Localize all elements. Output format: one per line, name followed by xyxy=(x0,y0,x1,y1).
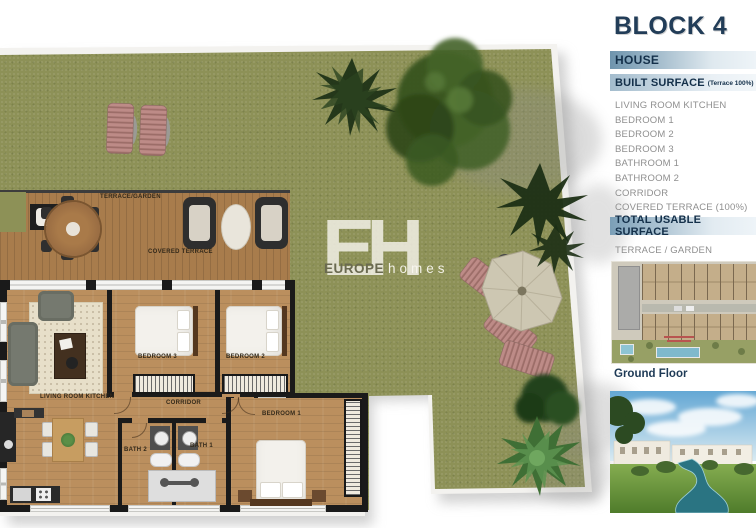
room-list: LIVING ROOM KITCHEN BEDROOM 1 BEDROOM 2 … xyxy=(615,99,748,216)
room-list-item: BEDROOM 2 xyxy=(615,128,748,143)
room-list-item: BEDROOM 1 xyxy=(615,114,748,129)
watermark: EH EUROPEhomes xyxy=(322,214,452,296)
info-panel: BLOCK 4 HOUSE BUILT SURFACE (Terrace 100… xyxy=(606,0,756,528)
terrace-garden-line: TERRACE / GARDEN xyxy=(615,245,712,256)
built-surface-bar: BUILT SURFACE (Terrace 100%) xyxy=(610,74,756,91)
round-bush xyxy=(515,374,579,425)
siteplan-pool-small xyxy=(620,344,634,355)
siteplan-unit-row xyxy=(642,314,756,340)
siteplan-tree xyxy=(712,342,719,349)
siteplan-tree xyxy=(738,348,745,355)
siteplan-thumbnail xyxy=(612,262,756,363)
sun-lounger xyxy=(139,105,171,156)
siteplan-tree xyxy=(646,342,653,349)
parasol xyxy=(482,251,562,331)
siteplan-car xyxy=(674,306,682,311)
render-photo xyxy=(610,391,756,513)
siteplan-annotation xyxy=(667,340,691,342)
siteplan-building xyxy=(618,266,640,330)
room-list-item: LIVING ROOM KITCHEN xyxy=(615,99,748,114)
room-list-item: BEDROOM 3 xyxy=(615,143,748,158)
sun-lounger xyxy=(106,103,138,154)
watermark-name-bold: EUROPE xyxy=(324,261,384,276)
siteplan-pool xyxy=(656,347,700,358)
siteplan-road xyxy=(642,304,756,312)
built-surface-note: (Terrace 100%) xyxy=(708,80,754,87)
siteplan-tree xyxy=(628,356,634,362)
watermark-name-light: homes xyxy=(388,261,449,276)
palm-tree xyxy=(308,55,398,139)
house-bar: HOUSE xyxy=(610,51,756,69)
total-surface-label: TOTAL USABLE SURFACE xyxy=(615,214,756,238)
block-title: BLOCK 4 xyxy=(614,12,727,41)
siteplan-annotation xyxy=(664,336,694,338)
siteplan-unit-row xyxy=(642,264,756,300)
house-bar-label: HOUSE xyxy=(615,53,659,67)
built-surface-label: BUILT SURFACE xyxy=(615,77,705,89)
ground-floor-label: Ground Floor xyxy=(614,368,687,380)
siteplan-car xyxy=(686,306,694,311)
room-list-item: CORRIDOR xyxy=(615,187,748,202)
room-list-item: BATHROOM 1 xyxy=(615,157,748,172)
room-list-item: BATHROOM 2 xyxy=(615,172,748,187)
brochure-page: TERRACE/GARDEN COVERED TERRACE LIVING RO… xyxy=(0,0,756,528)
total-surface-bar: TOTAL USABLE SURFACE xyxy=(610,217,756,235)
